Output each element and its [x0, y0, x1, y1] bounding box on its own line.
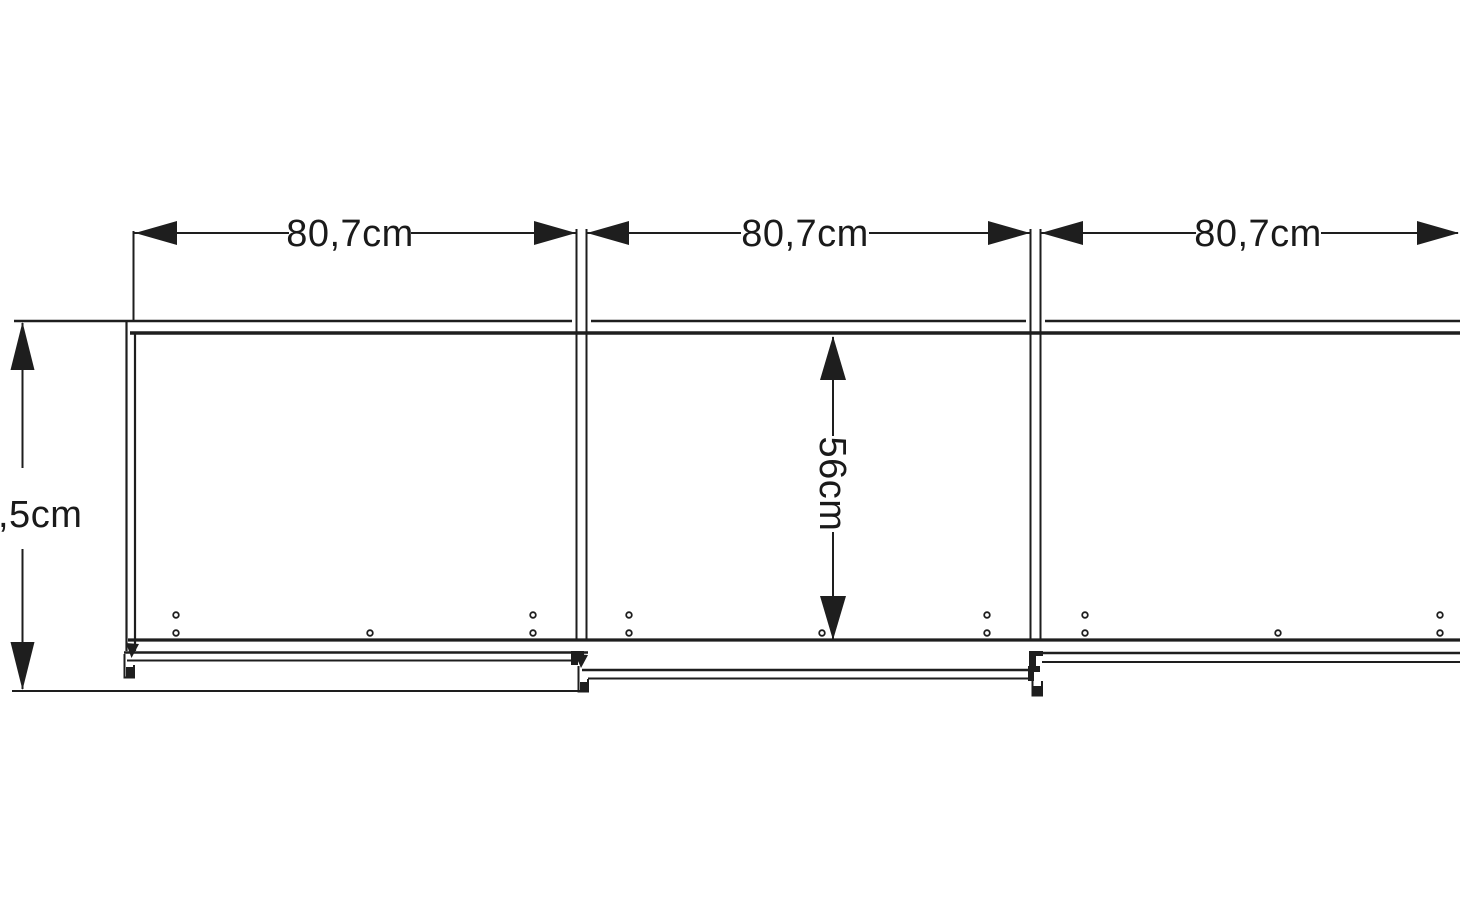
left-height-dimension	[11, 322, 582, 691]
drill-hole	[530, 630, 536, 636]
drill-hole	[1437, 630, 1443, 636]
width-label-1: 80,7cm	[286, 213, 414, 255]
drill-hole	[173, 630, 179, 636]
rail-foot-clip	[126, 667, 133, 677]
technical-drawing-page: 80,7cm 80,7cm 80,7cm	[0, 0, 1460, 914]
drill-hole	[984, 630, 990, 636]
arrow-right-icon	[1417, 221, 1459, 245]
middle-door-rail	[575, 654, 1042, 696]
wardrobe-body	[14, 321, 1460, 651]
left-side-panel	[127, 321, 136, 651]
drill-hole	[1082, 630, 1088, 636]
drill-hole	[1275, 630, 1281, 636]
arrow-right-icon	[534, 221, 576, 245]
arrow-right-icon	[988, 221, 1030, 245]
drill-hole	[1082, 612, 1088, 618]
arrow-left-icon	[587, 221, 629, 245]
drill-holes	[173, 612, 1443, 636]
rail-foot-clip	[580, 682, 587, 692]
wardrobe-dimension-drawing: 80,7cm 80,7cm 80,7cm	[0, 0, 1460, 914]
arrow-left-icon	[135, 221, 177, 245]
drill-hole	[984, 612, 990, 618]
witness-and-divider-lines	[134, 229, 1041, 640]
arrow-down-icon	[11, 642, 35, 690]
arrow-up-icon	[820, 336, 846, 380]
height-label-partial: ,5cm	[0, 494, 82, 536]
right-door-rail	[1029, 651, 1460, 666]
drill-hole	[173, 612, 179, 618]
arrow-up-icon	[11, 322, 35, 370]
rail-foot-clip	[1034, 686, 1042, 696]
top-panel	[14, 321, 1460, 333]
drill-hole	[367, 630, 373, 636]
drill-hole	[1437, 612, 1443, 618]
drill-hole	[819, 630, 825, 636]
drill-hole	[626, 612, 632, 618]
width-label-3: 80,7cm	[1194, 213, 1322, 255]
left-door-rail	[124, 643, 588, 678]
width-label-2: 80,7cm	[741, 213, 869, 255]
rail-elbow-clip	[1028, 666, 1040, 681]
rail-end-clip-left	[1029, 651, 1043, 666]
rail-mount-tick	[126, 643, 139, 658]
inner-height-label: 56cm	[811, 437, 853, 532]
arrow-left-icon	[1041, 221, 1083, 245]
drill-hole	[530, 612, 536, 618]
drill-hole	[626, 630, 632, 636]
